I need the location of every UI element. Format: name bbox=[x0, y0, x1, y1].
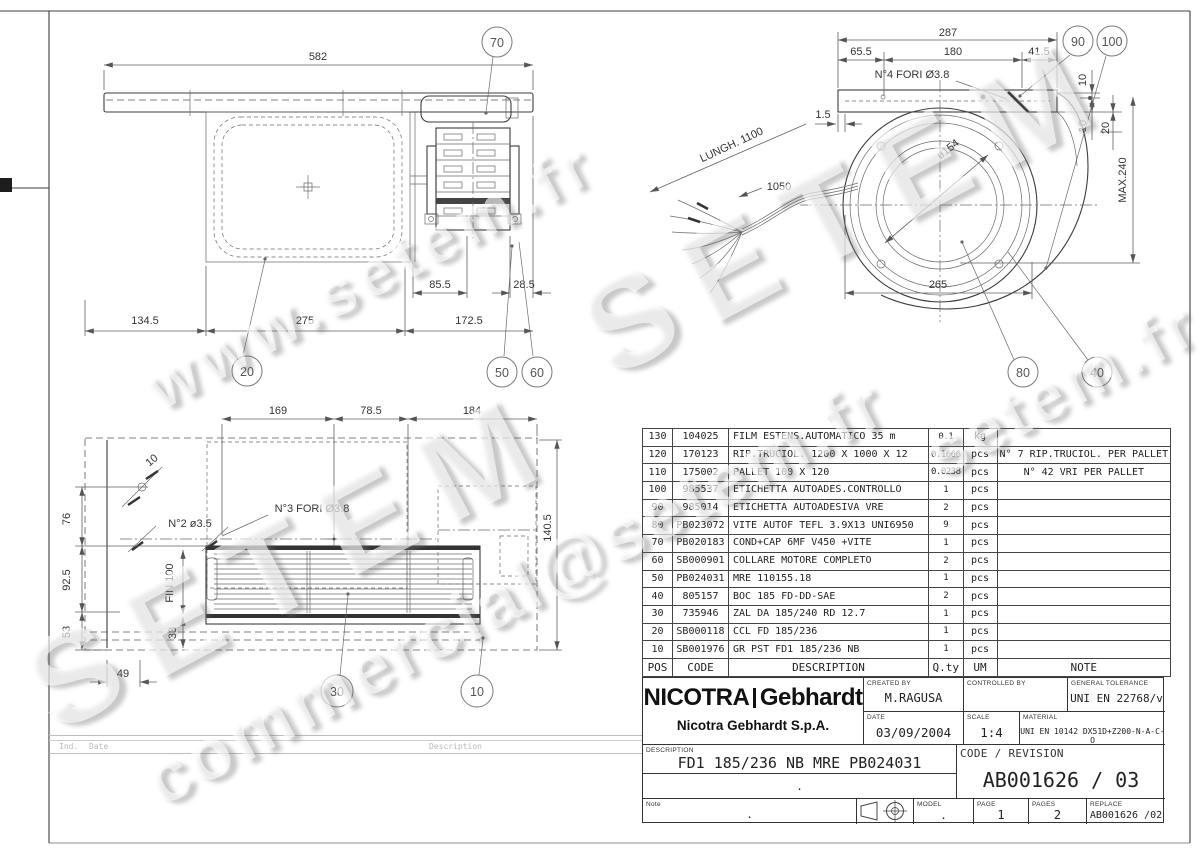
desc-cell: COLLARE MOTORE COMPLETO bbox=[729, 552, 929, 570]
code-cell: 170123 bbox=[673, 446, 729, 464]
um-cell: pcs bbox=[963, 446, 997, 464]
table-row: 40805157BOC 185 FD-DD-SAE2pcs bbox=[643, 588, 1171, 606]
um-cell: kg bbox=[963, 429, 997, 447]
note-cell bbox=[997, 429, 1171, 447]
dim-1-5: 1.5 bbox=[815, 109, 830, 121]
table-row: 100985537ETICHETTA AUTOADES.CONTROLLO1pc… bbox=[643, 482, 1171, 500]
note-cell bbox=[997, 499, 1171, 517]
desc-header: DESCRIPTION bbox=[729, 658, 929, 676]
code-cell: SB001976 bbox=[673, 641, 729, 659]
top-view-dimensions: 582 85.5 28.5 134.5 275 172.5 bbox=[85, 51, 551, 336]
dim-265: 265 bbox=[929, 279, 947, 291]
page-value: 1 bbox=[974, 808, 1028, 822]
code-cell: 985537 bbox=[673, 482, 729, 500]
material-cell: MATERIAL UNI EN 10142 DX51D+Z200-N-A-C-O bbox=[1019, 711, 1165, 744]
code-header: CODE bbox=[673, 658, 729, 676]
date-value: 03/09/2004 bbox=[864, 725, 963, 740]
note-label: Note bbox=[646, 801, 661, 808]
front-view-drawing bbox=[85, 438, 537, 650]
desc-cell: VITE AUTOF TEFL 3.9X13 UNI6950 bbox=[729, 517, 929, 535]
revision-ind-label: Ind. bbox=[59, 742, 78, 751]
note-cell: Note . bbox=[643, 798, 856, 824]
table-header-row: POSCODEDESCRIPTIONQ.tyUMNOTE bbox=[643, 658, 1171, 676]
pos-cell: 30 bbox=[643, 605, 673, 623]
top-view-drawing bbox=[104, 90, 533, 262]
replace-label: REPLACE bbox=[1090, 801, 1122, 808]
dim-n4-fori: N°4 FORI Ø3.8 bbox=[875, 69, 950, 81]
note-header: NOTE bbox=[997, 658, 1171, 676]
dim-n3-holes: N°3 FORI Ø3.8 bbox=[275, 503, 350, 515]
note-cell: N° 42 VRI PER PALLET bbox=[997, 464, 1171, 482]
logo-divider bbox=[753, 688, 756, 708]
code-revision-label: CODE / REVISION bbox=[960, 747, 1064, 760]
logo-cell: NICOTRA Gebhardt Nicotra Gebhardt S.p.A. bbox=[643, 678, 863, 744]
desc-cell: COND+CAP 6MF V450 +VITE bbox=[729, 535, 929, 553]
brand-right: Gebhardt bbox=[760, 684, 863, 712]
qty-cell: 9 bbox=[929, 517, 964, 535]
dim-65-5: 65.5 bbox=[850, 46, 871, 58]
brand-left: NICOTRA bbox=[643, 684, 749, 712]
table-row: 90985014ETICHETTA AUTOADESIVA VRE2pcs bbox=[643, 499, 1171, 517]
dim-582: 582 bbox=[309, 51, 327, 63]
revision-strip: Ind. Date Description bbox=[49, 735, 642, 754]
dim-lungh-1100: LUNGH. 1100 bbox=[698, 125, 765, 165]
um-cell: pcs bbox=[963, 570, 997, 588]
table-row: 10SB001976GR PST FD1 185/236 NB1pcs bbox=[643, 641, 1171, 659]
qty-cell: 1 bbox=[929, 605, 964, 623]
code-cell: SB000901 bbox=[673, 552, 729, 570]
revision-strip-line bbox=[49, 740, 642, 741]
dim-172-5: 172.5 bbox=[455, 315, 483, 327]
date-label: DATE bbox=[867, 714, 885, 721]
qty-cell: 1 bbox=[929, 535, 964, 553]
note-cell bbox=[997, 588, 1171, 606]
um-cell: pcs bbox=[963, 499, 997, 517]
qty-cell: 1 bbox=[929, 623, 964, 641]
controlled-by-cell: CONTROLLED BY bbox=[963, 678, 1067, 711]
dim-76: 76 bbox=[61, 513, 73, 525]
balloon-90: 90 bbox=[1071, 35, 1085, 49]
tolerance-cell: GENERAL TOLERANCE UNI EN 22768/v bbox=[1067, 678, 1165, 711]
dim-49: 49 bbox=[117, 668, 129, 680]
model-value: . bbox=[914, 809, 973, 822]
qty-cell: 2 bbox=[929, 588, 964, 606]
pos-cell: 40 bbox=[643, 588, 673, 606]
page-label: PAGE bbox=[977, 801, 996, 808]
side-view-balloons: 90 100 80 40 bbox=[960, 26, 1127, 387]
balloon-100: 100 bbox=[1102, 35, 1123, 49]
desc-cell: ZAL DA 185/240 RD 12.7 bbox=[729, 605, 929, 623]
code-revision-cell: CODE / REVISION AB001626 / 03 bbox=[956, 744, 1165, 798]
note-cell bbox=[997, 605, 1171, 623]
created-by-label: CREATED BY bbox=[867, 680, 911, 687]
note-cell: N° 7 RIP.TRUCIOL. PER PALLET bbox=[997, 446, 1171, 464]
note-cell bbox=[997, 623, 1171, 641]
um-cell: pcs bbox=[963, 641, 997, 659]
table-row: 20SB000118CCL FD 185/2361pcs bbox=[643, 623, 1171, 641]
description-extra: . bbox=[643, 780, 956, 793]
um-cell: pcs bbox=[963, 535, 997, 553]
table-row: 70PB020183COND+CAP 6MF V450 +VITE1pcs bbox=[643, 535, 1171, 553]
company-name: Nicotra Gebhardt S.p.A. bbox=[643, 718, 863, 733]
table-row: 30735946ZAL DA 185/240 RD 12.71pcs bbox=[643, 605, 1171, 623]
um-cell: pcs bbox=[963, 605, 997, 623]
description-extra-cell: . bbox=[643, 773, 956, 798]
tolerance-value: UNI EN 22768/v bbox=[1068, 692, 1165, 705]
pages-cell: PAGES 2 bbox=[1028, 798, 1086, 824]
scale-value: 1:4 bbox=[964, 725, 1019, 740]
balloon-40: 40 bbox=[1090, 366, 1104, 380]
code-cell: 985014 bbox=[673, 499, 729, 517]
pos-header: POS bbox=[643, 658, 673, 676]
nicotra-gebhardt-logo: NICOTRA Gebhardt bbox=[643, 678, 863, 718]
note-cell bbox=[997, 552, 1171, 570]
dim-134-5: 134.5 bbox=[131, 315, 159, 327]
balloon-80: 80 bbox=[1016, 366, 1030, 380]
pos-cell: 50 bbox=[643, 570, 673, 588]
table-row: 80PB023072VITE AUTOF TEFL 3.9X13 UNI6950… bbox=[643, 517, 1171, 535]
code-cell: SB000118 bbox=[673, 623, 729, 641]
dim-1050: 1050 bbox=[767, 181, 791, 193]
pos-cell: 100 bbox=[643, 482, 673, 500]
material-label: MATERIAL bbox=[1023, 714, 1057, 721]
cable-bundle bbox=[670, 183, 858, 293]
code-cell: 735946 bbox=[673, 605, 729, 623]
desc-cell: CCL FD 185/236 bbox=[729, 623, 929, 641]
qty-cell: 1 bbox=[929, 482, 964, 500]
um-cell: pcs bbox=[963, 482, 997, 500]
qty-cell: 2 bbox=[929, 499, 964, 517]
controlled-by-label: CONTROLLED BY bbox=[967, 680, 1026, 687]
edge-centering-mark bbox=[0, 178, 12, 192]
scale-cell: SCALE 1:4 bbox=[963, 711, 1019, 744]
note-cell bbox=[997, 482, 1171, 500]
note-value: . bbox=[643, 808, 856, 821]
table-row: 60SB000901COLLARE MOTORE COMPLETO2pcs bbox=[643, 552, 1171, 570]
tolerance-label: GENERAL TOLERANCE bbox=[1071, 680, 1148, 687]
dim-41-5: 41.5 bbox=[1028, 46, 1049, 58]
qty-cell: 1 bbox=[929, 570, 964, 588]
balloon-10: 10 bbox=[470, 685, 484, 699]
desc-cell: GR PST FD1 185/236 NB bbox=[729, 641, 929, 659]
dim-hole-10: 10 bbox=[144, 452, 161, 469]
pos-cell: 60 bbox=[643, 552, 673, 570]
dim-287: 287 bbox=[939, 27, 957, 39]
pos-cell: 20 bbox=[643, 623, 673, 641]
revision-description-label: Description bbox=[429, 742, 482, 751]
dim-33: 33 bbox=[167, 627, 179, 639]
pos-cell: 130 bbox=[643, 429, 673, 447]
dim-180: 180 bbox=[944, 46, 962, 58]
note-cell bbox=[997, 517, 1171, 535]
code-cell: 805157 bbox=[673, 588, 729, 606]
scale-label: SCALE bbox=[967, 714, 990, 721]
code-cell: PB020183 bbox=[673, 535, 729, 553]
created-by-value: M.RAGUSA bbox=[864, 691, 963, 705]
note-cell bbox=[997, 641, 1171, 659]
desc-cell: ETICHETTA AUTOADESIVA VRE bbox=[729, 499, 929, 517]
fins bbox=[214, 551, 472, 613]
um-cell: pcs bbox=[963, 517, 997, 535]
pos-cell: 70 bbox=[643, 535, 673, 553]
dim-78-5: 78.5 bbox=[360, 405, 381, 417]
desc-cell: FILM ESTENS.AUTOMATICO 35 m bbox=[729, 429, 929, 447]
material-value: UNI EN 10142 DX51D+Z200-N-A-C-O bbox=[1020, 727, 1165, 745]
qty-cell: 1 bbox=[929, 641, 964, 659]
side-view-drawing bbox=[670, 80, 1100, 322]
code-revision-value: AB001626 / 03 bbox=[957, 768, 1165, 792]
dim-140-5: 140.5 bbox=[542, 514, 554, 542]
description-cell: DESCRIPTION FD1 185/236 NB MRE PB024031 bbox=[643, 744, 956, 773]
table-row: 50PB024031MRE 110155.181pcs bbox=[643, 570, 1171, 588]
note-cell bbox=[997, 535, 1171, 553]
dim-max-240: MAX.240 bbox=[1117, 157, 1129, 202]
note-cell bbox=[997, 570, 1171, 588]
pos-cell: 90 bbox=[643, 499, 673, 517]
projection-symbol-icon bbox=[857, 799, 912, 823]
dim-fin-100: FIN 100 bbox=[164, 563, 176, 602]
qty-header: Q.ty bbox=[929, 658, 964, 676]
dim-n2-holes: N°2 ø3.5 bbox=[168, 518, 212, 530]
code-cell: PB024031 bbox=[673, 570, 729, 588]
parts-table: 130104025FILM ESTENS.AUTOMATICO 35 m0.1k… bbox=[642, 428, 1171, 677]
balloon-70: 70 bbox=[490, 36, 504, 50]
created-by-cell: CREATED BY M.RAGUSA bbox=[863, 678, 963, 711]
dim-85-5: 85.5 bbox=[429, 279, 450, 291]
balloon-20: 20 bbox=[240, 365, 254, 379]
replace-value: AB001626 /02 bbox=[1087, 810, 1165, 821]
dim-275: 275 bbox=[296, 315, 314, 327]
table-row: 130104025FILM ESTENS.AUTOMATICO 35 m0.1k… bbox=[643, 429, 1171, 447]
um-cell: pcs bbox=[963, 464, 997, 482]
um-cell: pcs bbox=[963, 552, 997, 570]
dim-184: 184 bbox=[463, 405, 481, 417]
qty-cell: 2 bbox=[929, 552, 964, 570]
model-label: MODEL bbox=[917, 801, 942, 808]
revision-date-label: Date bbox=[89, 742, 108, 751]
desc-cell: BOC 185 FD-DD-SAE bbox=[729, 588, 929, 606]
page-cell: PAGE 1 bbox=[973, 798, 1028, 824]
code-cell: 175002 bbox=[673, 464, 729, 482]
code-cell: 104025 bbox=[673, 429, 729, 447]
dim-10-a: 10 bbox=[1077, 74, 1089, 86]
title-block: NICOTRA Gebhardt Nicotra Gebhardt S.p.A.… bbox=[642, 677, 1164, 823]
side-view-dimensions: 287 65.5 180 41.5 N°4 FORI Ø3.8 1.5 LUNG… bbox=[650, 27, 1140, 299]
projection-cell bbox=[856, 798, 913, 824]
description-value: FD1 185/236 NB MRE PB024031 bbox=[643, 754, 956, 772]
dim-92-5: 92.5 bbox=[61, 569, 73, 590]
model-cell: MODEL . bbox=[913, 798, 973, 824]
dim-53: 53 bbox=[61, 626, 73, 638]
pos-cell: 80 bbox=[643, 517, 673, 535]
pages-value: 2 bbox=[1029, 808, 1086, 822]
code-cell: PB023072 bbox=[673, 517, 729, 535]
top-view-balloons: 70 20 50 60 bbox=[232, 27, 552, 387]
balloon-60: 60 bbox=[530, 366, 544, 380]
replace-cell: REPLACE AB001626 /02 bbox=[1086, 798, 1165, 824]
desc-cell: PALLET 100 X 120 bbox=[729, 464, 929, 482]
drawing-sheet: 582 85.5 28.5 134.5 275 172.5 70 20 50 6… bbox=[0, 0, 1200, 849]
qty-cell: 0.1666 bbox=[929, 446, 964, 464]
pages-label: PAGES bbox=[1032, 801, 1055, 808]
description-label: DESCRIPTION bbox=[646, 747, 694, 754]
qty-cell: 0.0238 bbox=[929, 464, 964, 482]
desc-cell: RIP.TRUCIOL. 1200 X 1000 X 12 bbox=[729, 446, 929, 464]
table-row: 120170123RIP.TRUCIOL. 1200 X 1000 X 120.… bbox=[643, 446, 1171, 464]
qty-cell: 0.1 bbox=[929, 429, 964, 447]
dim-20: 20 bbox=[1100, 122, 1112, 134]
um-header: UM bbox=[963, 658, 997, 676]
um-cell: pcs bbox=[963, 623, 997, 641]
dim-169: 169 bbox=[269, 405, 287, 417]
pos-cell: 120 bbox=[643, 446, 673, 464]
date-cell: DATE 03/09/2004 bbox=[863, 711, 963, 744]
um-cell: pcs bbox=[963, 588, 997, 606]
balloon-30: 30 bbox=[330, 685, 344, 699]
desc-cell: MRE 110155.18 bbox=[729, 570, 929, 588]
balloon-50: 50 bbox=[495, 366, 509, 380]
pos-cell: 110 bbox=[643, 464, 673, 482]
table-row: 110175002PALLET 100 X 1200.0238pcsN° 42 … bbox=[643, 464, 1171, 482]
pos-cell: 10 bbox=[643, 641, 673, 659]
desc-cell: ETICHETTA AUTOADES.CONTROLLO bbox=[729, 482, 929, 500]
